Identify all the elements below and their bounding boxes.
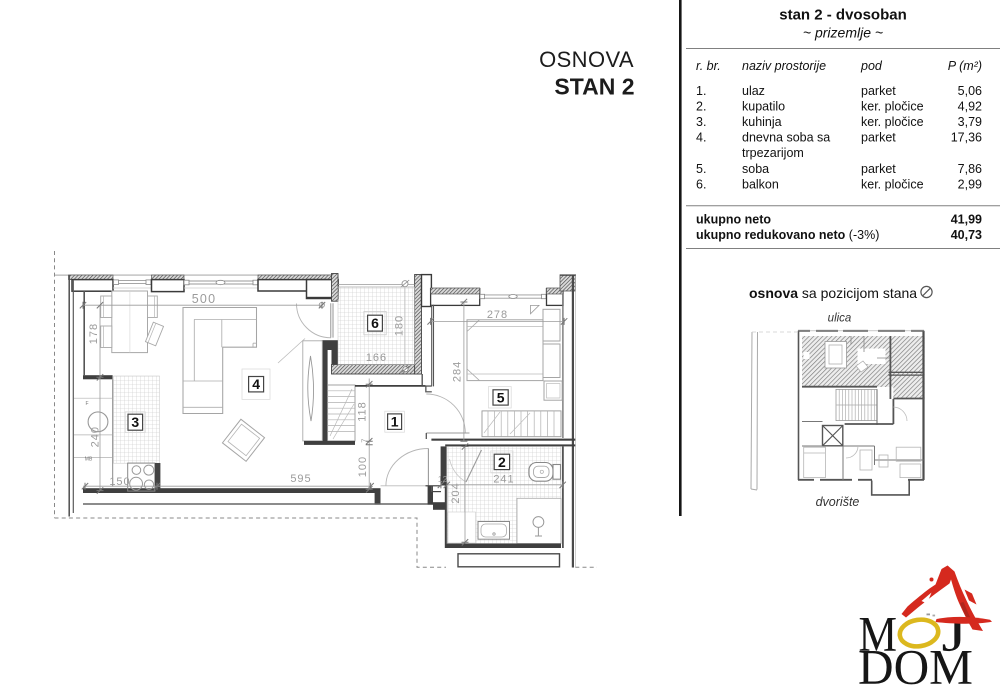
svg-text:STAN 2: STAN 2 <box>554 74 634 100</box>
svg-text:166: 166 <box>366 352 387 364</box>
svg-text:ulica: ulica <box>828 313 852 325</box>
svg-text:ker. pločice: ker. pločice <box>861 100 924 114</box>
svg-text:150: 150 <box>109 476 130 488</box>
svg-text:284: 284 <box>451 361 463 382</box>
svg-text:278: 278 <box>487 309 508 321</box>
svg-text:4.: 4. <box>696 131 706 145</box>
svg-text:5: 5 <box>497 389 505 405</box>
svg-text:7: 7 <box>360 439 369 443</box>
svg-text:40,73: 40,73 <box>951 228 982 242</box>
svg-text:41,99: 41,99 <box>951 213 982 227</box>
svg-text:~ prizemlje ~: ~ prizemlje ~ <box>803 25 883 41</box>
svg-text:6.: 6. <box>696 178 706 192</box>
svg-text:soba: soba <box>742 162 769 176</box>
svg-text:osnova sa pozicijom stana: osnova sa pozicijom stana <box>749 285 917 301</box>
svg-text:MB: MB <box>85 457 93 463</box>
svg-text:trpezarijom: trpezarijom <box>742 146 804 160</box>
svg-text:balkon: balkon <box>742 178 779 192</box>
svg-text:naziv prostorije: naziv prostorije <box>742 59 826 73</box>
svg-text:ukupno neto: ukupno neto <box>696 213 771 227</box>
svg-text:dnevna soba sa: dnevna soba sa <box>742 131 830 145</box>
svg-text:ker. pločice: ker. pločice <box>861 115 924 129</box>
svg-text:240: 240 <box>90 426 102 447</box>
svg-text:3.: 3. <box>696 115 706 129</box>
svg-text:ukupno redukovano neto (-3%): ukupno redukovano neto (-3%) <box>696 228 879 242</box>
svg-text:7,86: 7,86 <box>958 162 982 176</box>
svg-text:kupatilo: kupatilo <box>742 100 785 114</box>
svg-text:12: 12 <box>438 474 448 484</box>
svg-text:dvorište: dvorište <box>816 495 860 509</box>
svg-text:500: 500 <box>192 292 216 306</box>
svg-text:241: 241 <box>493 473 514 485</box>
svg-text:595: 595 <box>290 473 311 485</box>
svg-text:ulaz: ulaz <box>742 84 765 98</box>
svg-text:F: F <box>86 401 89 407</box>
svg-text:ker. pločice: ker. pločice <box>861 178 924 192</box>
svg-text:OSNOVA: OSNOVA <box>539 47 634 72</box>
svg-text:parket: parket <box>861 84 896 98</box>
svg-text:1: 1 <box>391 414 399 430</box>
svg-text:17,36: 17,36 <box>951 131 982 145</box>
svg-text:stan 2 - dvosoban: stan 2 - dvosoban <box>779 7 907 24</box>
svg-text:118: 118 <box>357 401 369 422</box>
svg-text:parket: parket <box>861 131 896 145</box>
svg-text:3,79: 3,79 <box>958 115 982 129</box>
svg-text:pod: pod <box>860 59 883 73</box>
svg-text:5,06: 5,06 <box>958 84 982 98</box>
svg-text:6: 6 <box>371 315 379 331</box>
svg-text:4,92: 4,92 <box>958 100 982 114</box>
svg-text:2.: 2. <box>696 100 706 114</box>
svg-text:1.: 1. <box>696 84 706 98</box>
svg-text:2,99: 2,99 <box>958 178 982 192</box>
svg-text:3: 3 <box>131 414 139 430</box>
svg-text:178: 178 <box>88 323 100 344</box>
svg-text:P (m²): P (m²) <box>948 59 982 73</box>
svg-text:parket: parket <box>861 162 896 176</box>
svg-text:r. br.: r. br. <box>696 59 721 73</box>
svg-text:180: 180 <box>394 315 406 336</box>
svg-text:100: 100 <box>357 456 369 477</box>
svg-text:2: 2 <box>498 454 506 470</box>
svg-text:4: 4 <box>252 376 260 392</box>
svg-text:204: 204 <box>450 482 462 503</box>
svg-text:kuhinja: kuhinja <box>742 115 782 129</box>
svg-text:5.: 5. <box>696 162 706 176</box>
